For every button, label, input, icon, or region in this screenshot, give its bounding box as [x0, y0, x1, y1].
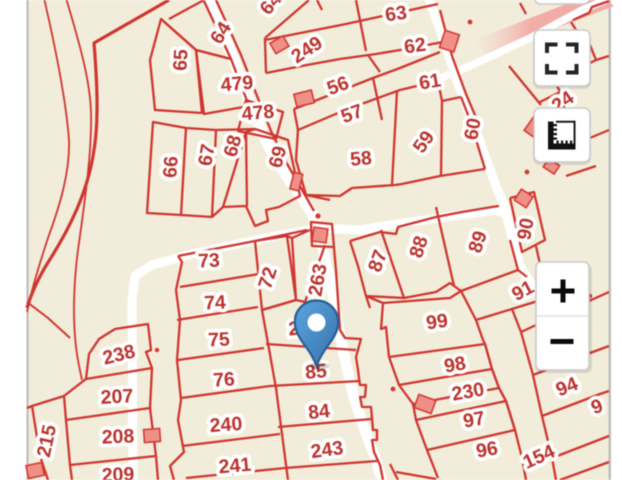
svg-text:99: 99	[425, 310, 450, 335]
svg-text:61: 61	[417, 69, 442, 94]
svg-text:76: 76	[212, 368, 235, 391]
svg-text:58: 58	[349, 147, 373, 171]
svg-text:62: 62	[403, 34, 428, 59]
svg-text:209: 209	[101, 463, 134, 480]
svg-text:208: 208	[101, 425, 134, 448]
svg-text:98: 98	[442, 352, 467, 377]
svg-text:65: 65	[169, 48, 192, 71]
svg-text:97: 97	[461, 407, 486, 432]
svg-text:60: 60	[460, 116, 485, 141]
svg-text:67: 67	[194, 142, 219, 167]
svg-text:240: 240	[209, 413, 243, 437]
svg-text:90: 90	[513, 216, 538, 241]
svg-text:478: 478	[241, 101, 275, 126]
svg-text:74: 74	[204, 291, 227, 314]
svg-text:73: 73	[198, 249, 221, 272]
svg-text:96: 96	[474, 437, 499, 462]
svg-text:66: 66	[159, 155, 182, 178]
svg-text:241: 241	[218, 454, 252, 479]
svg-text:63: 63	[384, 2, 409, 27]
svg-text:75: 75	[208, 328, 231, 351]
svg-text:243: 243	[309, 437, 344, 463]
svg-text:479: 479	[220, 72, 254, 97]
svg-text:84: 84	[307, 400, 331, 424]
svg-text:207: 207	[100, 385, 134, 409]
